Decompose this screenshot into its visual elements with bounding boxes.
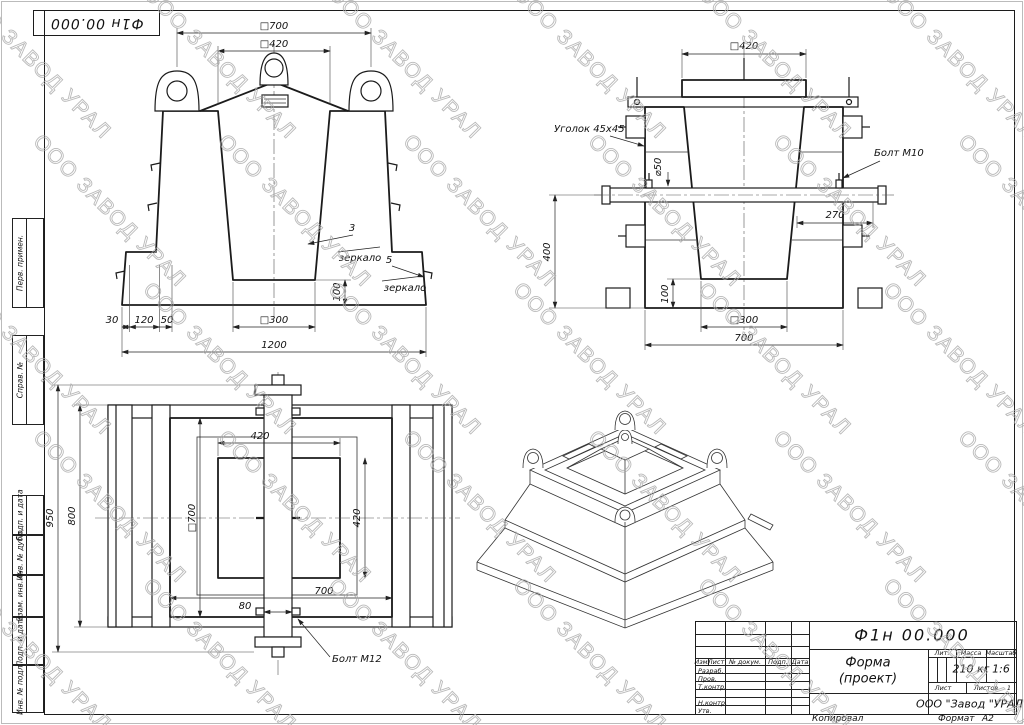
isometric-view: [455, 352, 795, 657]
plate-bolt-left: [635, 100, 640, 105]
dim-420-top: 420: [250, 431, 269, 442]
tb-label-list: Лист: [708, 658, 724, 666]
dim-120: 120: [134, 315, 153, 326]
tb-label-massa: Масса: [961, 649, 982, 657]
tb-doc-name: Форма: [845, 656, 890, 671]
tb-label-dokum: № докум.: [729, 658, 761, 666]
margin-divider: [26, 536, 27, 574]
dim-800: 800: [67, 506, 78, 525]
front-section-view: □700 □420 1200 30 120 50 □300 100 3: [55, 15, 475, 365]
drawing-sheet: Ф1н 00.000 Перв. примен. Справ. № Подп. …: [0, 0, 1024, 725]
dim-700-square: □700: [187, 504, 198, 533]
top-clamp-plate: [628, 97, 858, 107]
tb-sheets-value: 1: [1007, 684, 1011, 692]
margin-label: Подп. и дата: [16, 615, 25, 666]
lug-hole-right: [361, 81, 381, 101]
dim-400: 400: [542, 242, 553, 261]
tb-line: [809, 622, 810, 714]
dim-950: 950: [45, 508, 56, 527]
tb-line: [946, 657, 947, 682]
tb-label-masshtab: Масштаб: [986, 649, 1017, 657]
margin-label: Инв. № подл.: [16, 663, 25, 715]
margin-divider: [26, 336, 27, 424]
dim-100: 100: [332, 282, 343, 301]
dim-270: 270: [825, 210, 844, 221]
tb-label-tkontr: Т.контр.: [698, 683, 726, 691]
title-block: Изм. Лист № докум. Подп. Дата Разраб. Пр…: [695, 621, 1017, 715]
kopiroval-label: Копировал: [812, 714, 863, 724]
plate-bolt-right: [847, 100, 852, 105]
dim-30: 30: [106, 315, 119, 326]
dim-50: 50: [161, 315, 174, 326]
tb-scale-value: 1:6: [992, 663, 1010, 676]
leader-pos-3: 3: [349, 223, 355, 234]
tb-label-lit: Лит.: [935, 649, 950, 657]
margin-divider: [26, 219, 27, 307]
tb-line: [937, 657, 938, 682]
tb-line: [791, 622, 792, 714]
dim-shaft-dia: ⌀50: [653, 158, 664, 177]
tb-label-utv: Утв.: [698, 707, 712, 715]
vent-plate: [262, 95, 288, 107]
tb-line: [809, 693, 1016, 694]
format-label: Формат: [938, 714, 975, 724]
margin-label: Справ. №: [16, 362, 25, 399]
plan-view: 950 800 420 □700 420 700 80 Болт М12: [40, 370, 470, 682]
tb-label-podp: Подп.: [768, 658, 788, 666]
margin-divider: [26, 666, 27, 712]
label-bolt-m10: Болт М10: [874, 148, 924, 159]
tb-designation: Ф1н 00.000: [854, 626, 969, 645]
tb-label-prov: Пров.: [698, 675, 717, 683]
margin-label: Взам. инв. №: [16, 571, 25, 622]
leader-note-mirror-1: зеркало: [339, 253, 382, 264]
tb-line: [966, 682, 967, 693]
tb-line: [765, 622, 766, 714]
dim-420-inner: □420: [260, 39, 289, 50]
dim-300: □300: [260, 315, 289, 326]
format-value: А2: [982, 714, 994, 724]
dim-300: □300: [730, 315, 759, 326]
side-section-view: □420 ⌀50 270 400 100 □300 700 Уголок 45х…: [540, 20, 1000, 365]
dim-420-right: 420: [352, 508, 363, 527]
margin-divider: [26, 618, 27, 664]
dim-1200: 1200: [261, 340, 286, 351]
lid-block: [682, 80, 806, 97]
dim-80: 80: [239, 601, 252, 612]
leader-pos-5: 5: [386, 255, 392, 266]
tb-line: [928, 657, 1016, 658]
dim-700-outer: □700: [260, 21, 289, 32]
tb-doc-name-2: (проект): [839, 672, 897, 687]
margin-label: Перв. примен.: [16, 235, 25, 291]
tb-label-razrab: Разраб.: [698, 667, 724, 675]
tb-mass-value: 210 кг: [953, 663, 990, 676]
tb-line: [696, 646, 809, 647]
margin-divider: [26, 576, 27, 616]
leader-note-mirror-2: зеркало: [384, 283, 427, 294]
tb-label-data: Дата: [792, 658, 809, 666]
margin-divider: [26, 496, 27, 534]
tb-label-sheets: Листов: [974, 684, 998, 692]
label-angle-45x45: Уголок 45х45: [554, 124, 625, 135]
label-bolt-m12: Болт М12: [332, 654, 382, 665]
dim-700: 700: [734, 333, 753, 344]
dim-100: 100: [660, 284, 671, 303]
lug-hole-center: [265, 59, 283, 77]
dim-700-bottom: 700: [314, 586, 333, 597]
dim-420: □420: [730, 41, 759, 52]
lug-hole-left: [167, 81, 187, 101]
margin-box-perv-primen: Перв. примен.: [12, 218, 44, 308]
tb-label-nkontr: Н.контр.: [698, 699, 727, 707]
tb-line: [696, 634, 809, 635]
iso-wireframe: [477, 411, 773, 628]
tb-label-sheet: Лист: [935, 684, 951, 692]
tb-company: ООО "Завод "УРАЛ": [916, 697, 1024, 710]
